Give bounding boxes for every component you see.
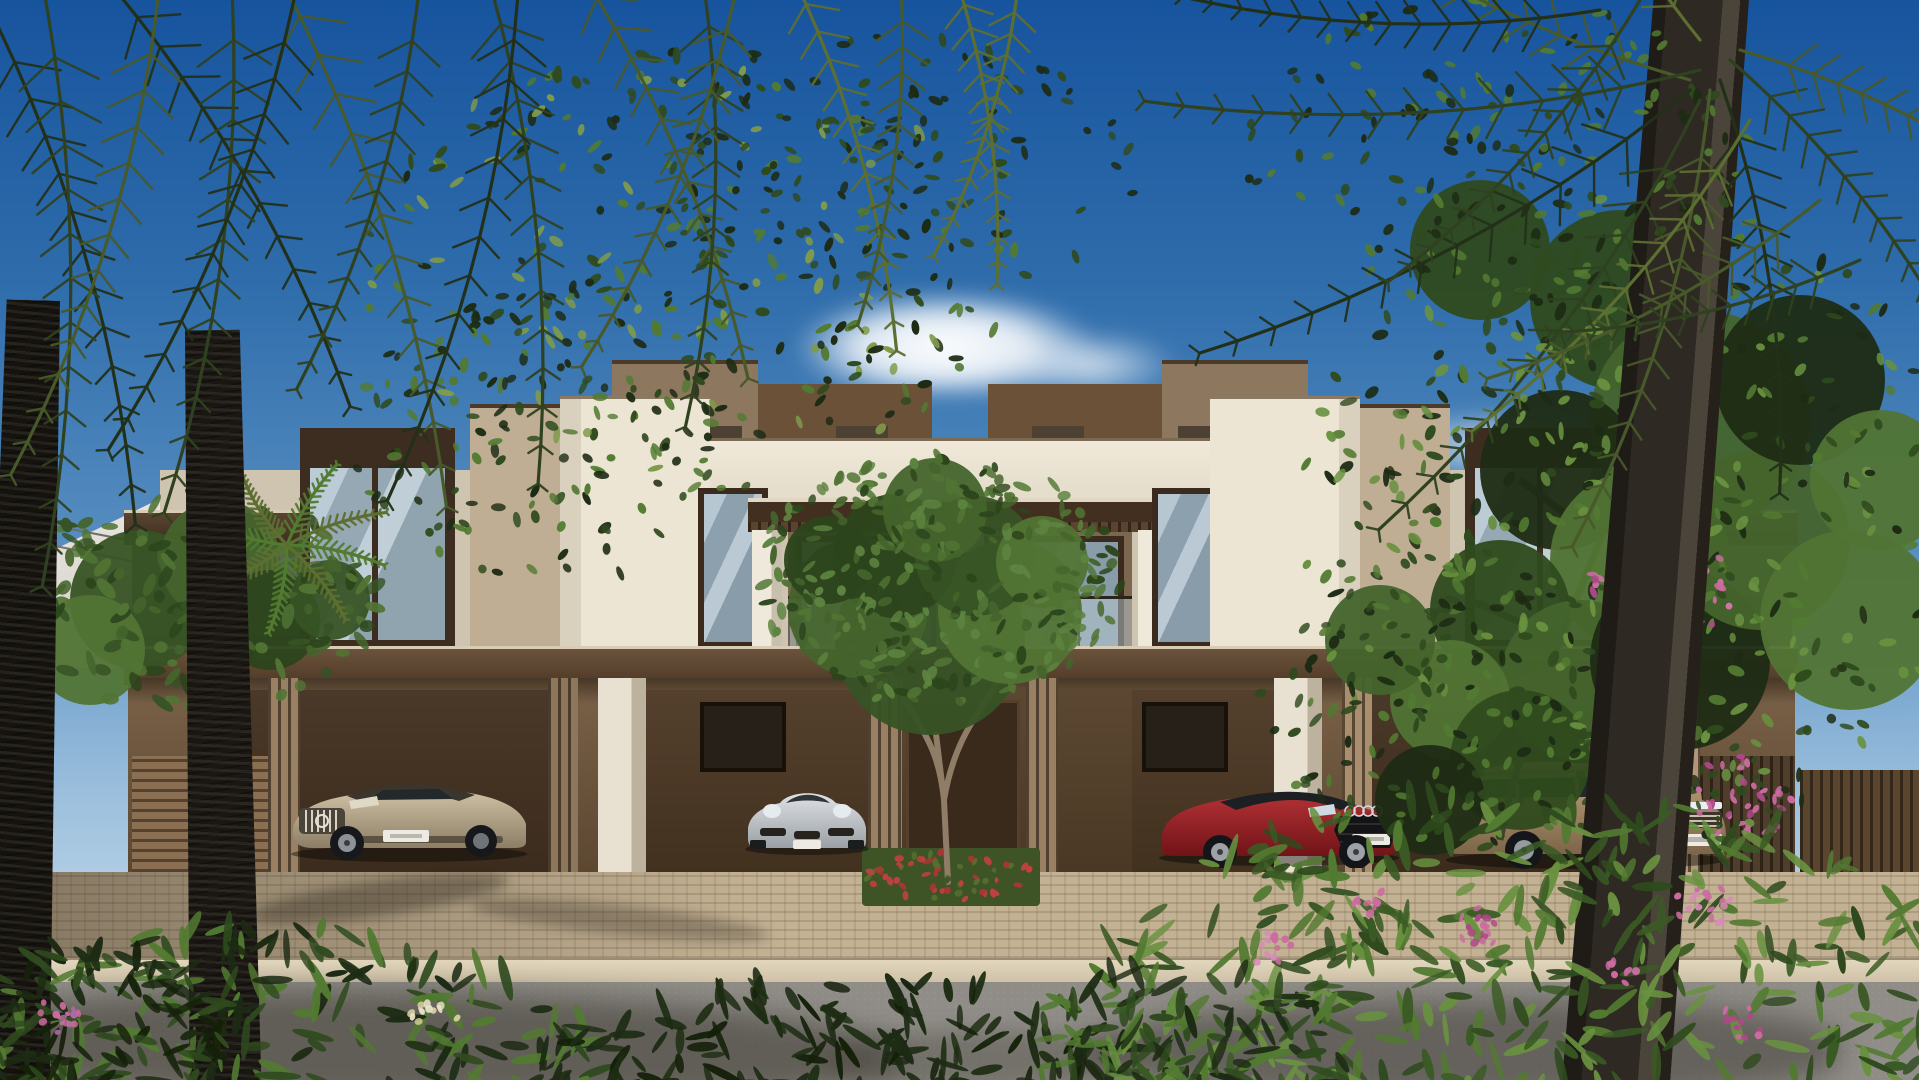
vegetation-front-layer bbox=[0, 0, 1919, 1080]
palm-canopy-right bbox=[1136, 0, 1919, 556]
bush-left bbox=[0, 909, 616, 1080]
canopy-leaf-clutter bbox=[351, 0, 1755, 582]
scene bbox=[0, 0, 1919, 1080]
